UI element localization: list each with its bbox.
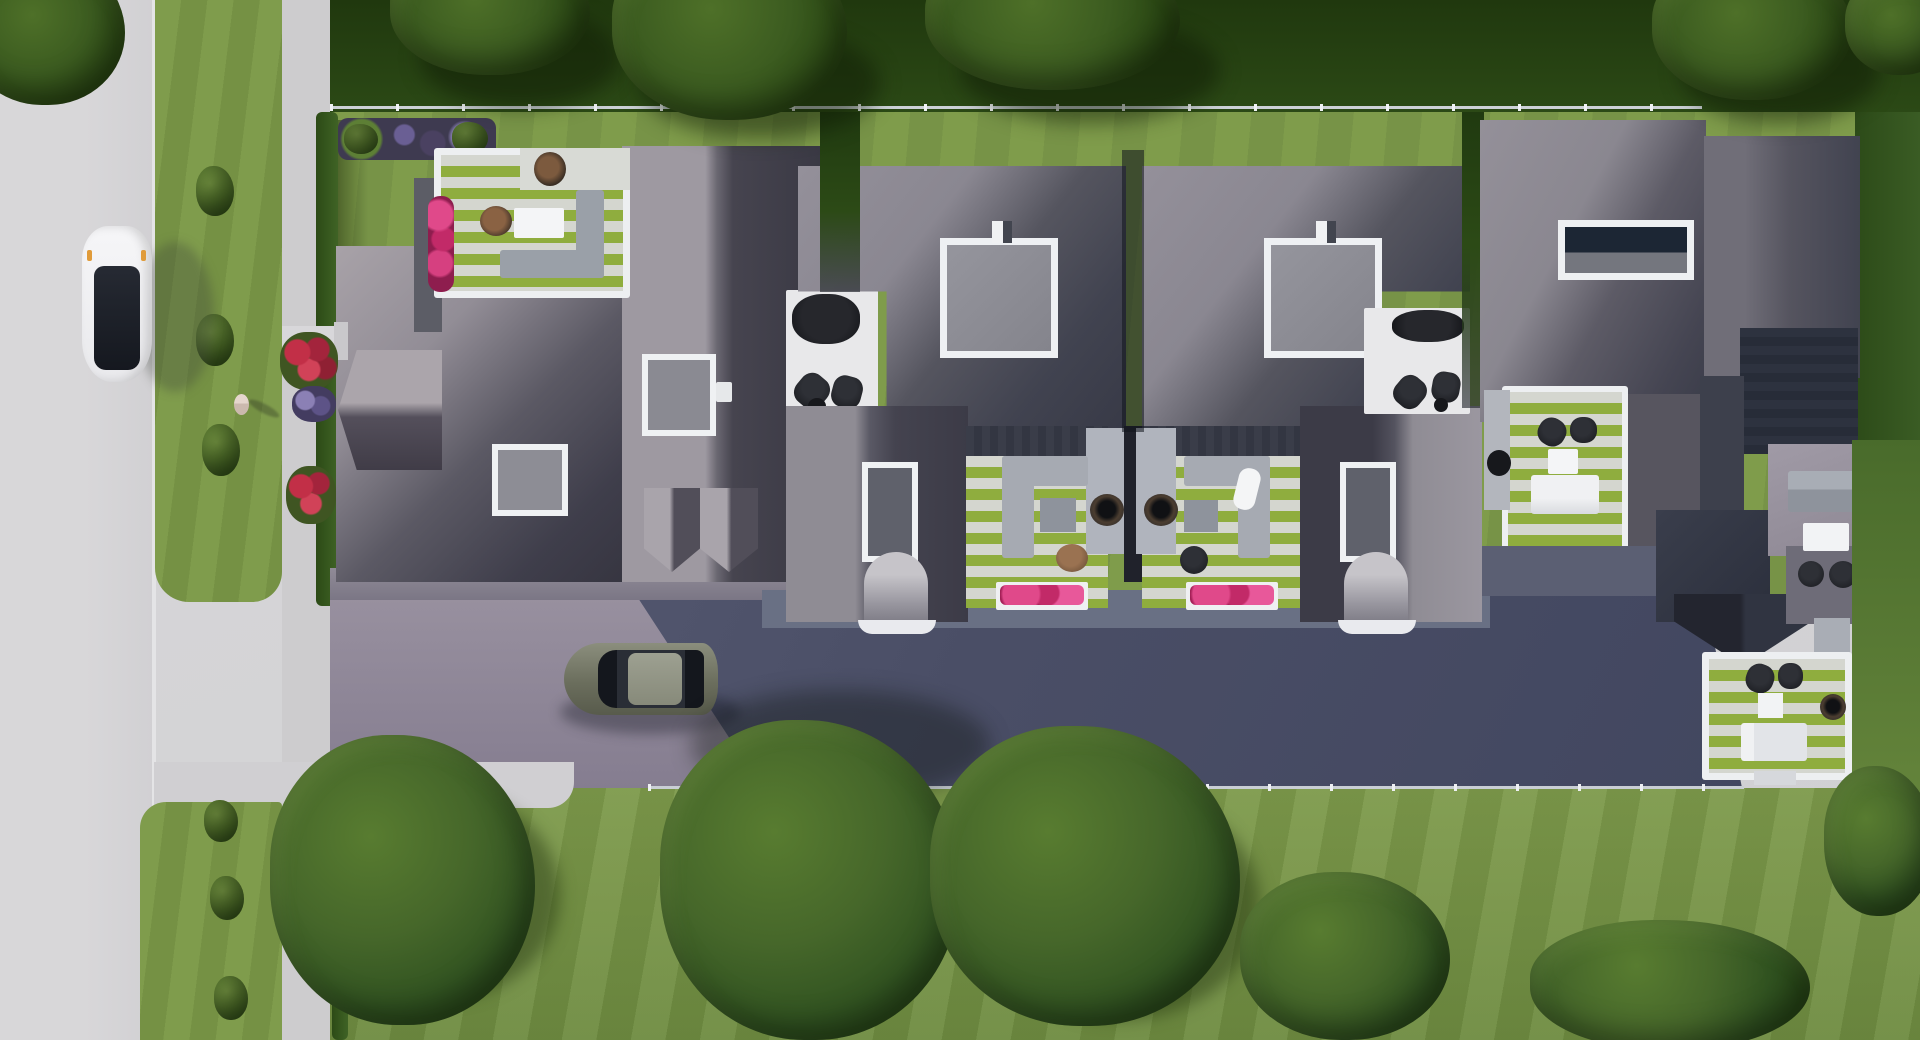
terrace4b-step xyxy=(1754,771,1796,785)
patio1-round-sofa xyxy=(792,294,860,344)
courtyard1-paver-walk xyxy=(1086,428,1126,554)
courtyard1-cube-table xyxy=(1040,498,1076,532)
person-walking xyxy=(234,394,249,415)
house2-skylight xyxy=(940,238,1058,358)
bush-verge-5 xyxy=(210,876,244,920)
courtyard1-pouf-brown xyxy=(1056,544,1088,572)
house4-front-pavement xyxy=(1482,546,1664,596)
white-car-marker-left xyxy=(87,250,92,261)
courtyard1-firepit xyxy=(1090,494,1124,526)
terrace4b-pouf-2 xyxy=(1778,663,1803,689)
house2-lower-skylight xyxy=(862,462,918,562)
patio4-sofa xyxy=(1788,471,1858,512)
house1-terrace-firebowl-top xyxy=(534,152,566,186)
house2-arch-trim xyxy=(858,620,936,634)
patio4-pouf-1 xyxy=(1798,561,1824,587)
house4-skylight-horizontal xyxy=(1558,220,1694,280)
flowerbed-bush-a xyxy=(344,124,378,154)
house3-arched-dormer xyxy=(1344,552,1408,628)
terrace4b-white-cube xyxy=(1758,693,1783,718)
patio2-pouf-3 xyxy=(1434,398,1448,412)
terrace4a-pouf-2 xyxy=(1570,417,1597,443)
courtyard2-firepit xyxy=(1144,494,1178,526)
house1-terrace-sofa-horizontal xyxy=(500,250,604,278)
house4-roof-notch xyxy=(1700,376,1744,514)
olive-car-roof-panel xyxy=(628,653,682,705)
terrace4a-black-pot xyxy=(1487,450,1511,476)
courtyard1-planter-flowers xyxy=(1000,585,1084,605)
courtyard2-pouf xyxy=(1180,546,1208,574)
terrace4b-firebowl xyxy=(1820,694,1846,720)
road-left xyxy=(0,0,154,1040)
tree-bottom-3 xyxy=(1240,872,1450,1040)
patio2-round-sofa xyxy=(1392,310,1464,342)
house3-lower-skylight xyxy=(1340,462,1396,562)
house1-terrace-firebowl-brown xyxy=(480,206,512,236)
courtyard2-cube-table xyxy=(1184,500,1218,532)
house1-terrace-bougainvillea xyxy=(428,196,454,292)
right-lawn-lower xyxy=(1852,440,1920,800)
white-car-marker-right xyxy=(141,250,146,261)
bush-verge-1 xyxy=(196,166,234,216)
house2-arched-dormer xyxy=(864,552,928,628)
house1-roof-vent xyxy=(716,382,732,402)
flowers-red-1 xyxy=(280,332,338,390)
terrace4a-table xyxy=(1548,449,1578,474)
house3-chimney xyxy=(1316,221,1336,243)
bush-verge-6 xyxy=(214,976,248,1020)
courtyard2-paver-walk xyxy=(1136,428,1176,554)
gap-house2-house3 xyxy=(1122,150,1144,432)
courtyard2-planter-flowers xyxy=(1190,585,1274,605)
house2-chimney xyxy=(992,221,1012,243)
white-car-glass xyxy=(94,266,140,370)
house1-terrace-coffee-table xyxy=(514,208,564,238)
patio4-table xyxy=(1803,523,1849,551)
flowers-red-2 xyxy=(286,466,336,524)
bush-verge-4 xyxy=(204,800,238,842)
courtyard1-sofa-left xyxy=(1002,456,1034,558)
house4-dark-shingle-subroof xyxy=(1740,328,1858,454)
gap-house1-house2 xyxy=(820,112,860,292)
terrace4b-lounger xyxy=(1741,723,1807,761)
stage xyxy=(0,0,1920,1040)
house1-skylight-upper xyxy=(642,354,716,436)
flowers-purple xyxy=(292,386,336,422)
house1-left-gable-wing xyxy=(338,350,442,470)
house3-arch-trim xyxy=(1338,620,1416,634)
house1-skylight-lower xyxy=(492,444,568,516)
terrace4a-white-sofa xyxy=(1531,475,1599,514)
bush-verge-3 xyxy=(202,424,240,476)
tree-right-edge xyxy=(1824,766,1920,916)
